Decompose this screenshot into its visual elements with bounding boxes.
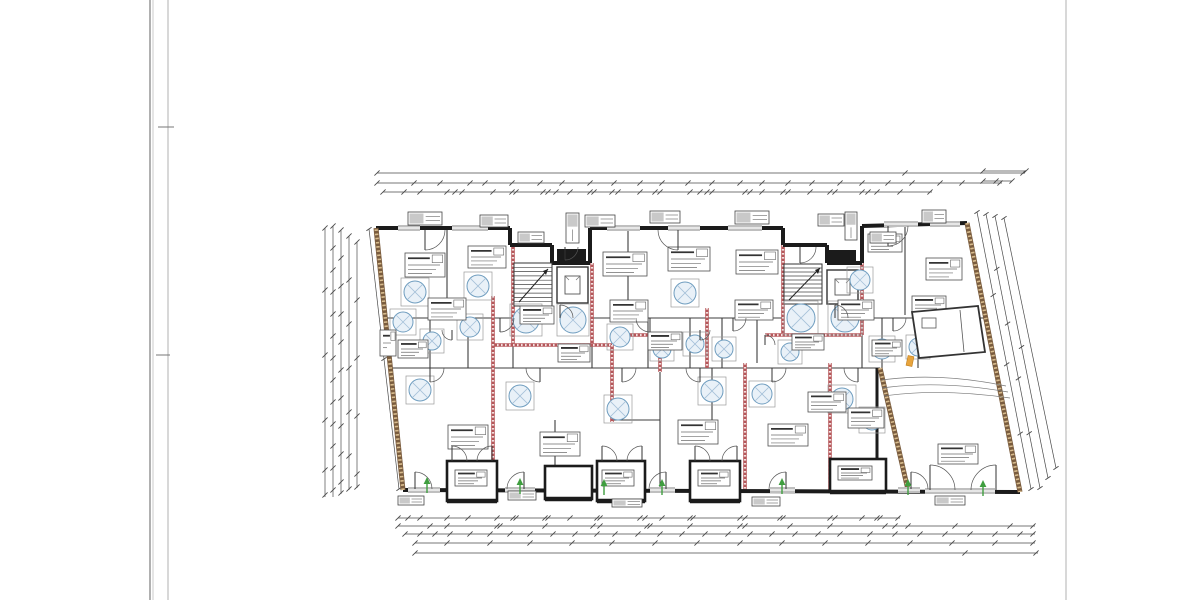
porch: [545, 466, 592, 499]
window-tag-fill: [820, 216, 830, 225]
window-tag-fill: [652, 213, 664, 222]
window-tag-fill: [410, 214, 424, 224]
window-tag-fill: [737, 213, 751, 223]
window-tag-fill: [937, 498, 949, 504]
window-tag-fill: [924, 212, 933, 222]
window-tag-fill: [510, 493, 521, 499]
wing-bathroom: [912, 306, 985, 358]
window-tag-fill: [872, 234, 882, 242]
window-tag-fill: [520, 234, 530, 242]
dimension-line: [1004, 218, 1056, 468]
window-tag-fill: [587, 217, 599, 226]
bathroom-walls: [912, 306, 985, 358]
window-tag-fill: [614, 501, 626, 506]
drawing-sheet: [0, 0, 1200, 600]
shaft-block: [557, 249, 586, 261]
floor-plan-canvas: [0, 0, 1200, 600]
shaft-block: [828, 250, 856, 261]
window-tag-fill: [754, 499, 765, 505]
window-tag-fill: [568, 215, 578, 227]
window-tag-fill: [482, 217, 493, 226]
window-tag-fill: [847, 214, 856, 225]
elevator-shaft: [557, 267, 588, 303]
window-tag-fill: [400, 498, 410, 504]
